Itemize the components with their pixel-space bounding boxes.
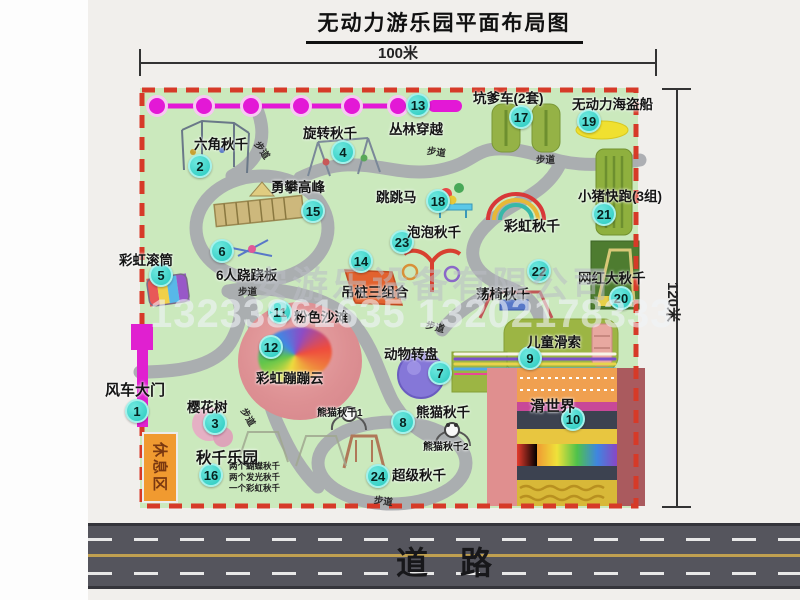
walkway-label-7: 步道 — [373, 492, 394, 509]
marker-label-13: 丛林穿越 — [389, 118, 443, 138]
area-label-1: 彩虹秋千 — [504, 216, 560, 236]
marker-label-5: 彩虹滚筒 — [119, 249, 173, 269]
title-wrap: 无动力游乐园平面布局图 — [88, 7, 800, 44]
marker-badge-11: 11 — [268, 300, 292, 324]
marker-badge-2: 2 — [188, 154, 212, 178]
marker-badge-7: 7 — [428, 361, 452, 385]
width-dimension-label: 100米 — [140, 42, 656, 63]
marker-label-22: 荡椅秋千 — [476, 283, 530, 303]
marker-badge-4: 4 — [331, 140, 355, 164]
marker-label-4: 旋转秋千 — [303, 122, 357, 142]
marker-label-20: 网红大秋千 — [578, 267, 646, 287]
marker-label-14: 吊桩三组合 — [341, 281, 409, 301]
marker-badge-20: 20 — [609, 286, 633, 310]
height-dimension-label: 120米 — [663, 282, 684, 322]
marker-badge-1: 1 — [125, 399, 149, 423]
marker-label-11: 粉色沙滩 — [294, 306, 348, 326]
marker-label-24: 超级秋千 — [392, 464, 446, 484]
marker-badge-21: 21 — [592, 202, 616, 226]
walkway-label-4: 步道 — [238, 284, 257, 298]
marker-sublabel-16: 两个蝴蝶秋千 — [229, 461, 280, 472]
marker-label-10: 滑世界 — [530, 395, 575, 416]
marker-badge-14: 14 — [349, 249, 373, 273]
marker-label-12: 彩虹蹦蹦云 — [256, 367, 324, 387]
marker-label-2: 六角秋千 — [194, 133, 248, 153]
marker-badge-18: 18 — [426, 189, 450, 213]
park-plan-stage: 无动力游乐园平面布局图 100米 120米 — [0, 0, 800, 600]
marker-badge-22: 22 — [527, 259, 551, 283]
marker-badge-8: 8 — [391, 410, 415, 434]
marker-badge-12: 12 — [259, 335, 283, 359]
right-dimension-tick-bottom — [662, 506, 691, 508]
marker-badge-24: 24 — [366, 464, 390, 488]
marker-badge-13: 13 — [406, 93, 430, 117]
marker-badge-6: 6 — [210, 239, 234, 263]
walkway-label-3: 步道 — [536, 152, 555, 166]
marker-label-21: 小猪快跑(3组) — [578, 185, 662, 205]
rest-area: 休息区 — [142, 432, 178, 503]
marker-label-18: 跳跳马 — [376, 186, 417, 206]
road-label: 道路 — [88, 538, 800, 584]
marker-label-9: 儿童滑索 — [527, 331, 581, 351]
road: 道路 — [88, 523, 800, 589]
marker-sublabel-16: 一个彩虹秋千 — [229, 483, 280, 494]
area-label-2: 熊猫秋千1 — [317, 404, 363, 419]
marker-label-6: 6人跷跷板 — [216, 264, 278, 284]
page-title: 无动力游乐园平面布局图 — [306, 7, 583, 44]
walkway-label-2: 步道 — [426, 143, 447, 160]
marker-label-17: 坑爹车(2套) — [473, 87, 544, 107]
right-dimension-tick-top — [662, 88, 691, 90]
marker-label-1: 风车大门 — [105, 379, 165, 400]
left-margin-strip — [0, 0, 88, 600]
marker-label-8: 熊猫秋千 — [416, 401, 470, 421]
marker-label-3: 樱花树 — [187, 396, 228, 416]
marker-label-19: 无动力海盗船 — [572, 93, 653, 113]
marker-label-7: 动物转盘 — [384, 343, 438, 363]
marker-label-15: 勇攀高峰 — [271, 176, 325, 196]
marker-sublabel-16: 两个发光秋千 — [229, 472, 280, 483]
rest-area-label: 休息区 — [150, 442, 171, 493]
area-label-3: 熊猫秋千2 — [423, 438, 469, 453]
marker-badge-17: 17 — [509, 105, 533, 129]
marker-badge-15: 15 — [301, 199, 325, 223]
marker-label-23: 泡泡秋千 — [407, 221, 461, 241]
